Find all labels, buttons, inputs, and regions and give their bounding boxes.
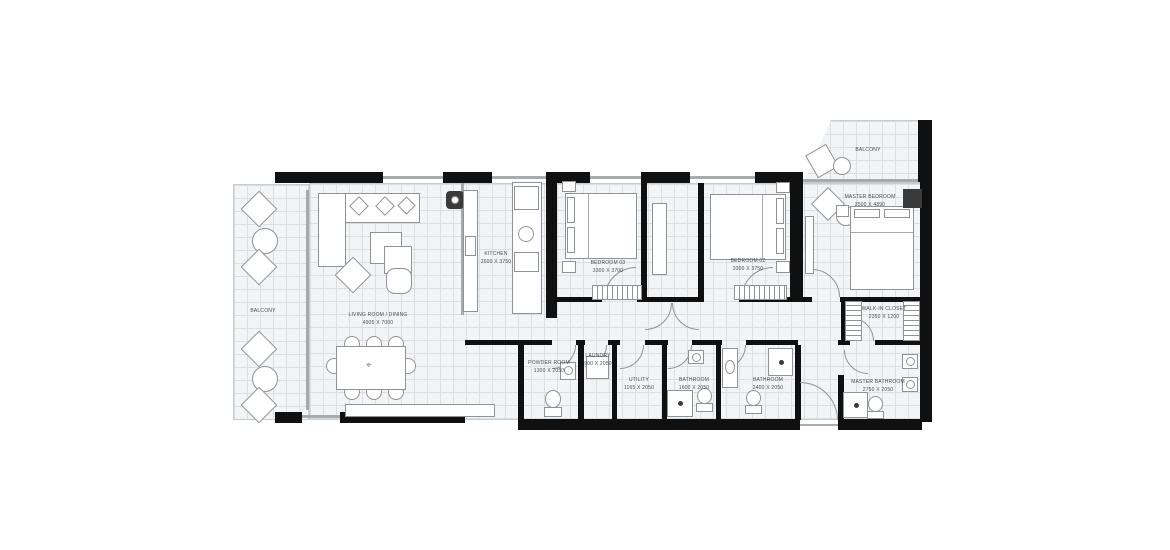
room-label-bathroom-2: BATHROOM 2400 X 2050: [753, 376, 784, 392]
wall: [918, 120, 932, 182]
wall: [443, 172, 492, 183]
pillow: [567, 197, 575, 223]
room-name: BATHROOM: [753, 377, 783, 383]
blanket-fold: [762, 195, 763, 259]
toilet-tank: [745, 405, 762, 414]
shower-drain: [779, 360, 784, 365]
room-name: BATHROOM: [679, 377, 709, 383]
room-name: BEDROOM 03: [591, 260, 626, 266]
room-name: LAUNDRY: [585, 353, 610, 359]
room-label-utility: UTILITY 1165 X 2050: [624, 376, 654, 392]
window: [302, 415, 340, 418]
bed: [565, 193, 637, 259]
nightstand: [776, 182, 790, 193]
wall: [465, 340, 552, 345]
room-name: UTILITY: [629, 377, 649, 383]
balcony-table: [833, 157, 851, 175]
floor-plan: ⌖: [0, 0, 1170, 550]
window: [690, 176, 755, 179]
wall: [275, 172, 383, 183]
shower-drain: [678, 401, 683, 406]
room-dims: 1165 X 2050: [624, 384, 654, 392]
wall: [641, 172, 690, 183]
kitchen-sink: [465, 236, 476, 256]
pillow: [854, 209, 880, 218]
sliding-door: [803, 179, 918, 182]
window: [590, 176, 641, 179]
window: [383, 176, 443, 179]
sink-basin: [725, 360, 735, 374]
wall: [698, 183, 704, 302]
wall: [612, 345, 617, 420]
pillow: [776, 228, 784, 254]
room-name: BALCONY: [855, 147, 880, 153]
pillow: [567, 227, 575, 253]
wall: [838, 419, 922, 430]
sink-basin: [906, 380, 915, 389]
toilet: [746, 390, 761, 406]
hall-cabinet: [652, 203, 667, 275]
wall: [546, 183, 557, 318]
blanket-fold: [851, 232, 913, 233]
fridge: [514, 186, 539, 210]
pillow: [884, 209, 910, 218]
room-label-master-bedroom: MASTER BEDROOM 3500 X 4890: [845, 193, 896, 209]
room-dims: 2750 X 2050: [851, 386, 905, 394]
room-dims: 3300 X 3700: [591, 267, 626, 275]
room-label-master-bathroom: MASTER BATHROOM 2750 X 2050: [851, 378, 905, 394]
sink-basin: [692, 353, 701, 362]
room-label-balcony-top-right: BALCONY: [855, 146, 880, 154]
room-dims: 4905 X 7000: [348, 319, 407, 327]
sliding-door: [306, 190, 309, 410]
room-name: MASTER BATHROOM: [851, 379, 905, 385]
room-label-powder-room: POWDER ROOM 1300 X 2050: [528, 359, 570, 375]
column: [903, 189, 922, 208]
room-label-bedroom-03: BEDROOM 03 3300 X 3700: [591, 259, 626, 275]
pillow: [776, 198, 784, 224]
oven: [514, 252, 539, 272]
closet-wardrobe: [845, 301, 862, 341]
cooktop-burner: [451, 196, 459, 204]
wall: [803, 297, 812, 302]
room-dims: 2400 X 2050: [753, 384, 784, 392]
wall: [920, 182, 932, 422]
room-label-balcony-left: BALCONY: [250, 307, 275, 315]
wardrobe: [592, 285, 642, 300]
room-label-laundry: LAUNDRY 900 X 2050: [584, 352, 612, 368]
room-name: BEDROOM 02: [731, 258, 766, 264]
wardrobe: [734, 285, 787, 300]
window: [492, 176, 546, 179]
wall: [716, 345, 721, 420]
wall: [746, 340, 798, 345]
tv-console: [805, 216, 814, 274]
room-name: MASTER BEDROOM: [845, 194, 896, 200]
room-name: WALK-IN CLOSET: [862, 306, 907, 312]
wall: [518, 345, 524, 420]
room-name: KITCHEN: [484, 251, 507, 257]
room-dims: 2350 X 1200: [862, 313, 907, 321]
center-mark-icon: ⌖: [366, 360, 372, 371]
shower-drain: [854, 403, 859, 408]
bed: [710, 194, 786, 260]
sink-basin: [906, 357, 915, 366]
bed: [850, 206, 914, 290]
room-dims: 3500 X 4890: [845, 201, 896, 209]
room-label-bedroom-02: BEDROOM 02 3300 X 3750: [731, 257, 766, 273]
toilet: [868, 396, 883, 412]
nightstand: [562, 261, 576, 273]
room-dims: 900 X 2050: [584, 360, 612, 368]
toilet-tank: [696, 403, 713, 412]
room-label-bathroom-1: BATHROOM 1600 X 2050: [679, 376, 710, 392]
room-label-living-dining: LIVING ROOM / DINING 4905 X 7000: [348, 311, 407, 327]
wall: [275, 412, 302, 423]
room-dims: 3300 X 3750: [731, 265, 766, 273]
sofa-chaise: [318, 193, 346, 267]
kitchen-sink-round: [518, 226, 534, 242]
room-dims: 1600 X 2050: [679, 384, 710, 392]
toilet: [545, 390, 561, 408]
room-label-walk-in-closet: WALK-IN CLOSET 2350 X 1200: [862, 305, 907, 321]
room-dims: 1300 X 2050: [528, 367, 570, 375]
nightstand: [562, 181, 576, 192]
wall: [790, 172, 803, 302]
toilet-tank: [867, 411, 884, 419]
room-name: POWDER ROOM: [528, 360, 570, 366]
console: [345, 404, 495, 417]
wall: [578, 345, 584, 420]
room-label-kitchen: KITCHEN 2600 X 3750: [481, 250, 512, 266]
pouf: [386, 268, 412, 294]
entry-threshold: [800, 424, 838, 426]
room-dims: 2600 X 3750: [481, 258, 512, 266]
nightstand: [776, 261, 790, 273]
room-name: LIVING ROOM / DINING: [348, 312, 407, 318]
wall: [637, 297, 704, 302]
room-name: BALCONY: [250, 308, 275, 314]
wall: [518, 419, 800, 430]
blanket-fold: [588, 194, 589, 258]
toilet-tank: [544, 407, 562, 417]
